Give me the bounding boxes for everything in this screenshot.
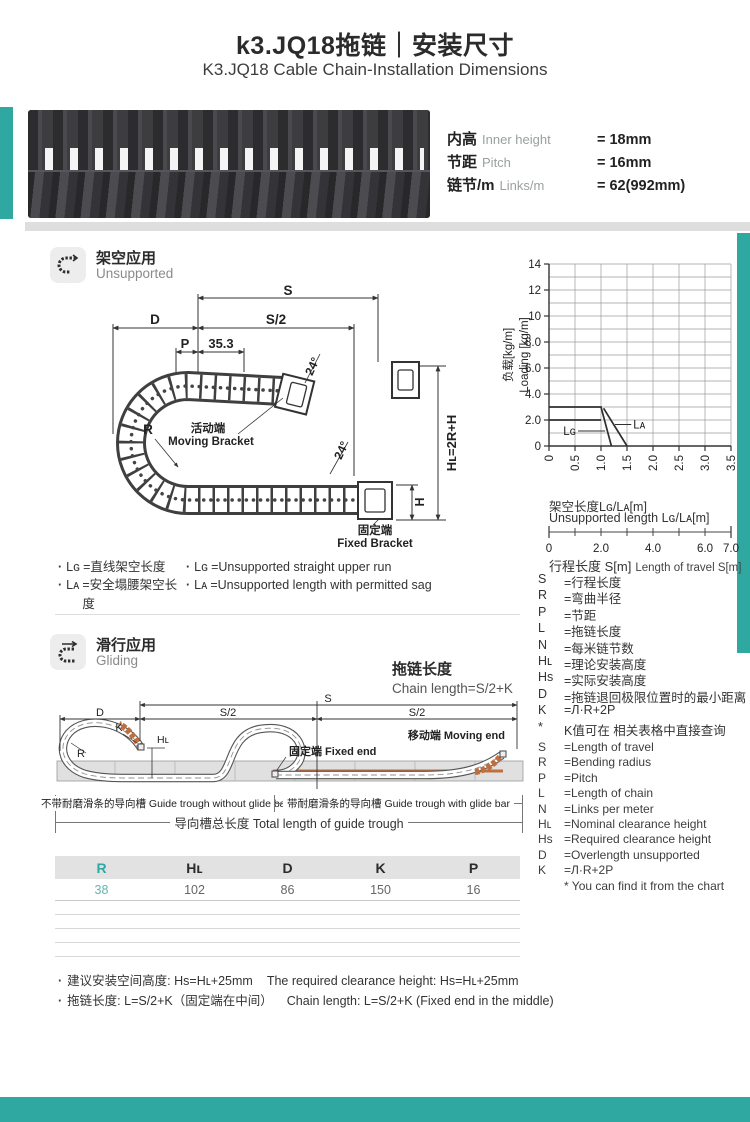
chain-link-gaps — [34, 148, 424, 170]
dim-s2-label: S/2 — [266, 312, 286, 327]
spec-label-cn: 节距 — [447, 151, 477, 172]
scale-tick-label: 2.0 — [593, 543, 609, 555]
dim-s-label: S — [283, 284, 292, 298]
product-photo-cable-chain — [28, 110, 430, 218]
table-header-cell: D — [241, 860, 334, 876]
definition-row: L=拖链长度 — [538, 621, 748, 637]
trough-total-length-cell: 导向槽总长度 Total length of guide trough — [55, 812, 523, 833]
series-label: Lɢ — [563, 426, 576, 438]
unsupported-dimension-drawing: S D S/2 P 35.3 24° 24° R 活动端 Moving Brac… — [58, 284, 472, 566]
dim-d-label: D — [96, 707, 104, 719]
table-cell: 86 — [241, 883, 334, 897]
definition-row: Hs=实际安装高度 — [538, 670, 748, 686]
table-row: 381028615016 — [55, 879, 520, 901]
spec-label-en: Links/m — [500, 178, 545, 193]
radius-label: R — [77, 748, 85, 760]
y-axis-title-en: Loading [kg/m] — [519, 317, 531, 392]
legend-item: Lɢ=Unsupported straight upper run — [186, 560, 391, 574]
definition-row: P=Pitch — [538, 771, 750, 786]
y-tick-label: 2.0 — [525, 415, 541, 427]
table-header-cell: Hʟ — [148, 860, 241, 876]
chart-xaxis-caption-en: Unsupported length Lɢ/Lᴀ[m] — [549, 511, 710, 525]
page-subtitle: K3.JQ18 Cable Chain-Installation Dimensi… — [0, 60, 750, 80]
definitions-list-en: S=Length of travelR=Bending radiusP=Pitc… — [538, 740, 750, 894]
y-tick-label: 0 — [535, 441, 541, 453]
definition-row: N=每米链节数 — [538, 638, 748, 654]
spec-value: = 62(992mm) — [597, 178, 685, 194]
x-tick-label: 2.5 — [674, 455, 686, 471]
dim-d-label: D — [150, 312, 160, 327]
definition-row: S=行程长度 — [538, 572, 748, 588]
spec-row: 内高Inner height = 18mm — [447, 128, 747, 151]
legend-item: Lɢ=直线架空长度 — [58, 556, 186, 575]
section-title-gliding-en: Gliding — [96, 653, 138, 668]
accent-strip-left — [0, 107, 13, 219]
footnotes: 建议安装空间高度: Hs=Hʟ+25mm The required cleara… — [58, 970, 718, 1010]
note-en: The required clearance height: Hs=Hʟ+25m… — [267, 974, 519, 988]
hl-dim-label: Hʟ=2R+H — [444, 415, 459, 471]
x-tick-label: 1.5 — [622, 455, 634, 471]
table-cell: 16 — [427, 883, 520, 897]
travel-length-scale: 02.04.06.07.0 — [497, 524, 747, 556]
guide-trough-annotations: 不带耐磨滑条的导向槽 Guide trough without glide ba… — [55, 795, 523, 833]
definition-row: S=Length of travel — [538, 740, 750, 755]
definition-row: D=拖链退回极限位置时的最小距离 — [538, 687, 748, 703]
table-cell: 102 — [148, 883, 241, 897]
spec-value: = 16mm — [597, 155, 651, 171]
hl-label: Hʟ — [157, 734, 169, 746]
legend-item: Lᴀ=安全塌腰架空长度 — [58, 574, 186, 612]
unsupported-section-icon-box — [50, 247, 86, 283]
series-line-Lɢ — [549, 407, 611, 446]
moving-end-label: 移动端 Moving end — [408, 728, 505, 742]
definition-row: L=Length of chain — [538, 786, 750, 801]
y-axis-title-cn: 负载[kg/m] — [501, 328, 515, 382]
lg-la-legend: Lɢ=直线架空长度 Lɢ=Unsupported straight upper … — [58, 556, 498, 592]
chain-length-heading: 拖链长度 Chain length=S/2+K — [392, 658, 513, 696]
chain-length-cn: 拖链长度 — [392, 658, 513, 679]
table-header-cell: P — [427, 860, 520, 876]
spec-label-cn: 内高 — [447, 128, 477, 149]
gliding-dimension-drawing: S D S/2 S/2 K R Hʟ 固定端 Fixed end 移动端 Mov… — [55, 693, 525, 795]
definition-row: Hs=Required clearance height — [538, 832, 750, 847]
section-title-unsupported-en: Unsupported — [96, 266, 173, 281]
dimension-table: RHʟDKP381028615016 — [55, 856, 520, 957]
spec-label-en: Pitch — [482, 155, 511, 170]
note-cn: 建议安装空间高度: Hs=Hʟ+25mm — [67, 970, 253, 989]
note-row: 建议安装空间高度: Hs=Hʟ+25mm The required cleara… — [58, 970, 718, 990]
section-title-unsupported-cn: 架空应用 — [96, 247, 156, 268]
scale-tick-label: 4.0 — [645, 543, 661, 555]
radius-label: R — [143, 422, 153, 437]
y-tick-label: 14 — [528, 259, 541, 271]
dim-s2-label: S/2 — [220, 707, 237, 719]
definition-row: R=Bending radius — [538, 755, 750, 770]
scale-tick-label: 6.0 — [697, 543, 713, 555]
dim-s2-label: S/2 — [409, 707, 426, 719]
trough-with-glidebar-cell: 带耐磨滑条的导向槽 Guide trough with glide bar — [274, 795, 523, 812]
cable-chain-curve-icon — [55, 252, 81, 278]
y-tick-label: 12 — [528, 285, 541, 297]
gliding-section-icon-box — [50, 634, 86, 670]
page-title: k3.JQ18拖链｜安装尺寸 — [0, 26, 750, 62]
angle-24-label: 24° — [331, 439, 351, 462]
moving-bracket-label-cn: 活动端 — [191, 421, 226, 435]
datasheet-page: k3.JQ18拖链｜安装尺寸 K3.JQ18 Cable Chain-Insta… — [0, 0, 750, 1122]
definition-row: *K值可在 相关表格中直接查询 — [538, 720, 748, 736]
dim-k-label: K — [115, 722, 123, 734]
note-cn: 拖链长度: L=S/2+K（固定端在中间） — [67, 990, 273, 1009]
definition-row: Hʟ=理论安装高度 — [538, 654, 748, 670]
spec-label-en: Inner height — [482, 132, 551, 147]
definition-row: N=Links per meter — [538, 802, 750, 817]
table-header-cell: R — [55, 860, 148, 876]
x-tick-label: 2.0 — [648, 455, 660, 471]
table-empty-row — [55, 901, 520, 915]
spec-row: 链节/mLinks/m = 62(992mm) — [447, 174, 747, 197]
definition-row: K=Л·R+2P — [538, 863, 750, 878]
fixed-bracket-shape — [358, 482, 392, 519]
table-empty-row — [55, 929, 520, 943]
x-tick-label: 1.0 — [596, 455, 608, 471]
table-header-cell: K — [334, 860, 427, 876]
trough-without-glidebar-cell: 不带耐磨滑条的导向槽 Guide trough without glide ba… — [55, 795, 274, 812]
spec-row: 节距Pitch = 16mm — [447, 151, 747, 174]
table-cell: 150 — [334, 883, 427, 897]
h-dim-label: H — [413, 497, 427, 506]
legend-item: Lᴀ=Unsupported length with permitted sag — [186, 578, 432, 592]
dim-s-label: S — [324, 693, 331, 705]
definition-row: R=弯曲半径 — [538, 588, 748, 604]
fixed-bracket-label-cn: 固定端 — [358, 523, 393, 537]
note-en: Chain length: L=S/2+K (Fixed end in the … — [287, 994, 554, 1008]
moving-bracket-label-en: Moving Bracket — [168, 436, 254, 448]
angle-24-label: 24° — [302, 355, 322, 378]
section-title-gliding-cn: 滑行应用 — [96, 634, 156, 655]
definition-row: * You can find it from the chart — [538, 879, 750, 894]
table-empty-row — [55, 915, 520, 929]
table-header-row: RHʟDKP — [55, 856, 520, 879]
dim-353-label: 35.3 — [208, 336, 233, 351]
table-cell: 38 — [55, 883, 148, 897]
note-row: 拖链长度: L=S/2+K（固定端在中间） Chain length: L=S/… — [58, 990, 718, 1010]
definition-row: K=Л·R+2P — [538, 703, 748, 719]
x-tick-label: 0 — [544, 455, 556, 461]
moving-bracket-shape — [275, 374, 314, 415]
spec-list: 内高Inner height = 18mm 节距Pitch = 16mm 链节/… — [447, 128, 747, 197]
definition-row: D=Overlength unsupported — [538, 848, 750, 863]
x-tick-label: 0.5 — [570, 455, 582, 471]
loading-chart: 02.04.06.08.010121400.51.01.52.02.53.03.… — [497, 256, 747, 492]
x-tick-label: 3.5 — [726, 455, 738, 471]
chain-links-bottom — [28, 170, 430, 218]
table-empty-row — [55, 943, 520, 957]
scale-tick-label: 0 — [546, 543, 552, 555]
fixed-bracket-label-en: Fixed Bracket — [337, 538, 413, 550]
end-position-bracket-shape — [392, 362, 419, 398]
scale-tick-label: 7.0 — [723, 543, 739, 555]
definitions-list-cn: S=行程长度R=弯曲半径P=节距L=拖链长度N=每米链节数Hʟ=理论安装高度Hs… — [538, 572, 748, 736]
dim-p-label: P — [181, 336, 190, 351]
divider-bar — [25, 222, 750, 231]
footer-bar — [0, 1097, 750, 1122]
definition-row: Hʟ=Nominal clearance height — [538, 817, 750, 832]
x-tick-label: 3.0 — [700, 455, 712, 471]
spec-label-cn: 链节/m — [447, 174, 495, 195]
spec-value: = 18mm — [597, 132, 651, 148]
fixed-end-label: 固定端 Fixed end — [289, 744, 376, 758]
cable-chain-glide-icon — [55, 639, 81, 665]
definition-row: P=节距 — [538, 605, 748, 621]
section-divider — [55, 614, 520, 615]
series-label: Lᴀ — [633, 420, 645, 432]
